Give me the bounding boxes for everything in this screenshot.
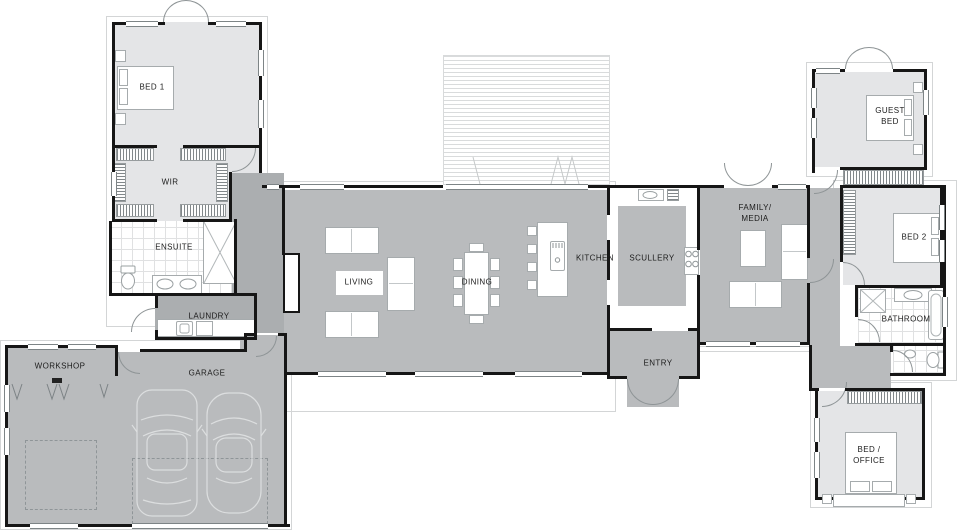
pillow [904, 99, 912, 116]
room-label-family: FAMILY/ MEDIA [739, 203, 772, 225]
wardrobe-shelving [180, 148, 226, 161]
window-seat [822, 494, 832, 504]
wall [697, 275, 700, 331]
wardrobe-shelving [216, 163, 228, 202]
bedside-table [115, 113, 126, 125]
wall [893, 69, 927, 72]
wall [155, 337, 257, 340]
room-label-living: LIVING [345, 278, 374, 289]
room-label-laundry: LAUNDRY [189, 312, 230, 323]
room-label-garage: GARAGE [189, 369, 226, 380]
window [415, 371, 483, 377]
room-label-entry: ENTRY [644, 359, 673, 370]
wall [5, 345, 118, 348]
wall [607, 328, 652, 331]
room-label-scullery: SCULLERY [629, 254, 674, 265]
wall [924, 69, 927, 167]
room-label-dining: DINING [462, 278, 492, 289]
wall [282, 188, 285, 255]
wall [697, 331, 700, 376]
wall [840, 185, 843, 262]
wall [112, 219, 157, 222]
shower [203, 221, 237, 284]
wall [855, 343, 943, 346]
island-sink [550, 241, 565, 271]
dishwasher-icon [667, 189, 679, 201]
wardrobe-shelving [843, 170, 924, 185]
sofa-icon [325, 227, 379, 254]
window [939, 205, 945, 230]
wall [183, 219, 232, 222]
door-arc [186, 0, 209, 22]
wall [607, 376, 627, 379]
wall [247, 333, 256, 336]
window-seat [833, 494, 905, 507]
window [811, 88, 817, 108]
wall [855, 285, 943, 288]
door-arc [163, 0, 186, 22]
room-label-wir: WIR [162, 178, 179, 189]
room-label-bed2: BED 2 [901, 233, 926, 244]
workbench-vice [52, 378, 62, 383]
garage-door [132, 523, 268, 529]
window [778, 184, 806, 190]
hallway-left [232, 173, 284, 333]
window [258, 100, 264, 128]
room-label-bed1: BED 1 [139, 83, 164, 94]
sofa-icon [325, 311, 379, 338]
room-entry [610, 331, 697, 377]
wardrobe-shelving [116, 148, 154, 161]
vanity [152, 275, 202, 294]
wall [483, 372, 515, 375]
window [4, 385, 10, 412]
window [814, 452, 820, 478]
pillow [850, 481, 870, 492]
room-label-guest: GUEST BED [875, 106, 905, 128]
door-arc [845, 47, 869, 69]
wall [262, 185, 443, 188]
fireplace [283, 253, 300, 313]
pillow [931, 238, 939, 256]
wall [582, 372, 610, 375]
wall [112, 145, 157, 148]
hallway-right [810, 188, 840, 388]
wall [259, 22, 262, 173]
chair-icon [469, 315, 484, 324]
wall [807, 283, 810, 345]
wall [284, 333, 287, 527]
window [515, 371, 582, 377]
garage-slab-outline [132, 458, 268, 524]
sofa-cushion-line [389, 283, 413, 284]
window [923, 90, 929, 115]
window [126, 21, 158, 27]
vanity [894, 288, 932, 302]
wardrobe-shelving [847, 391, 922, 404]
room-label-ensuite: ENSUITE [155, 243, 192, 254]
wall [607, 185, 700, 188]
room-label-bathroom: BATHROOM [882, 315, 931, 326]
sofa-cushion-line [783, 251, 806, 252]
window [942, 297, 948, 327]
window [267, 184, 279, 190]
wall [109, 221, 112, 296]
door-arc [748, 163, 772, 186]
wall [115, 348, 118, 376]
cooktop [684, 247, 699, 275]
wall [607, 331, 610, 376]
dryer-icon [196, 321, 213, 336]
pillow [904, 119, 912, 136]
deck [443, 55, 610, 185]
door-arc [869, 47, 893, 69]
door-arc [724, 163, 748, 186]
window [814, 418, 820, 442]
wall [155, 295, 158, 308]
hallway-right-arm [840, 346, 891, 388]
wall [234, 219, 237, 296]
pillow [931, 217, 939, 235]
chair-icon [490, 294, 500, 307]
window [30, 523, 78, 529]
window [939, 240, 945, 262]
sofa-icon [781, 224, 808, 280]
wall [815, 388, 818, 500]
window [258, 50, 264, 76]
floor-plan: BED 1 WIR ENSUITE LAUNDRY WORKSHOP GARAG… [0, 0, 960, 531]
chair-icon [453, 294, 463, 307]
window [216, 21, 246, 27]
window [811, 118, 817, 138]
bedside-table [913, 144, 923, 155]
wall [922, 388, 925, 500]
wall [109, 293, 158, 296]
window [756, 341, 800, 347]
wall [890, 346, 893, 352]
wall [809, 345, 812, 391]
wall [700, 185, 724, 188]
window [111, 172, 117, 196]
stool-icon [527, 280, 537, 290]
stool-icon [527, 226, 537, 236]
wall [840, 185, 943, 188]
pillow [872, 481, 892, 492]
wall [679, 376, 700, 379]
room-label-bedoffice: BED / OFFICE [853, 445, 885, 467]
pillow [119, 69, 128, 86]
pillow [119, 88, 128, 105]
stool-icon [527, 244, 537, 254]
room-label-kitchen: KITCHEN [576, 254, 614, 265]
scullery-sink [638, 189, 664, 201]
storage-outline [25, 440, 97, 510]
tv-icon [740, 230, 766, 267]
bedside-table [913, 82, 923, 93]
wall [607, 185, 610, 215]
wall [386, 372, 415, 375]
chair-icon [490, 258, 500, 271]
wardrobe-shelving [843, 190, 856, 255]
washer-icon [176, 321, 193, 336]
sliding-door [446, 184, 588, 190]
wall [845, 388, 925, 391]
wall [840, 167, 927, 170]
chair-icon [469, 243, 484, 252]
window [300, 184, 344, 190]
wall [284, 372, 318, 375]
window-seat [906, 494, 916, 504]
wall [697, 185, 700, 250]
window [816, 68, 840, 74]
bedside-table [115, 50, 126, 62]
wardrobe-shelving [180, 204, 226, 217]
wall [890, 373, 946, 376]
stool-icon [527, 262, 537, 272]
sofa-cushion-line [755, 283, 756, 306]
wardrobe-shelving [116, 204, 154, 217]
room-label-workshop: WORKSHOP [35, 362, 86, 373]
wall [155, 293, 257, 296]
sofa-cushion-line [351, 229, 352, 252]
sofa-icon [387, 257, 415, 311]
window [68, 344, 96, 350]
wall [229, 172, 232, 222]
window [4, 428, 10, 455]
wall [855, 285, 858, 317]
window [318, 371, 386, 377]
chair-icon [453, 258, 463, 271]
window [28, 344, 58, 350]
shower [860, 289, 886, 313]
wall [140, 349, 244, 352]
wall [183, 145, 262, 148]
window [706, 341, 750, 347]
sofa-cushion-line [351, 313, 352, 336]
wall [807, 185, 810, 258]
